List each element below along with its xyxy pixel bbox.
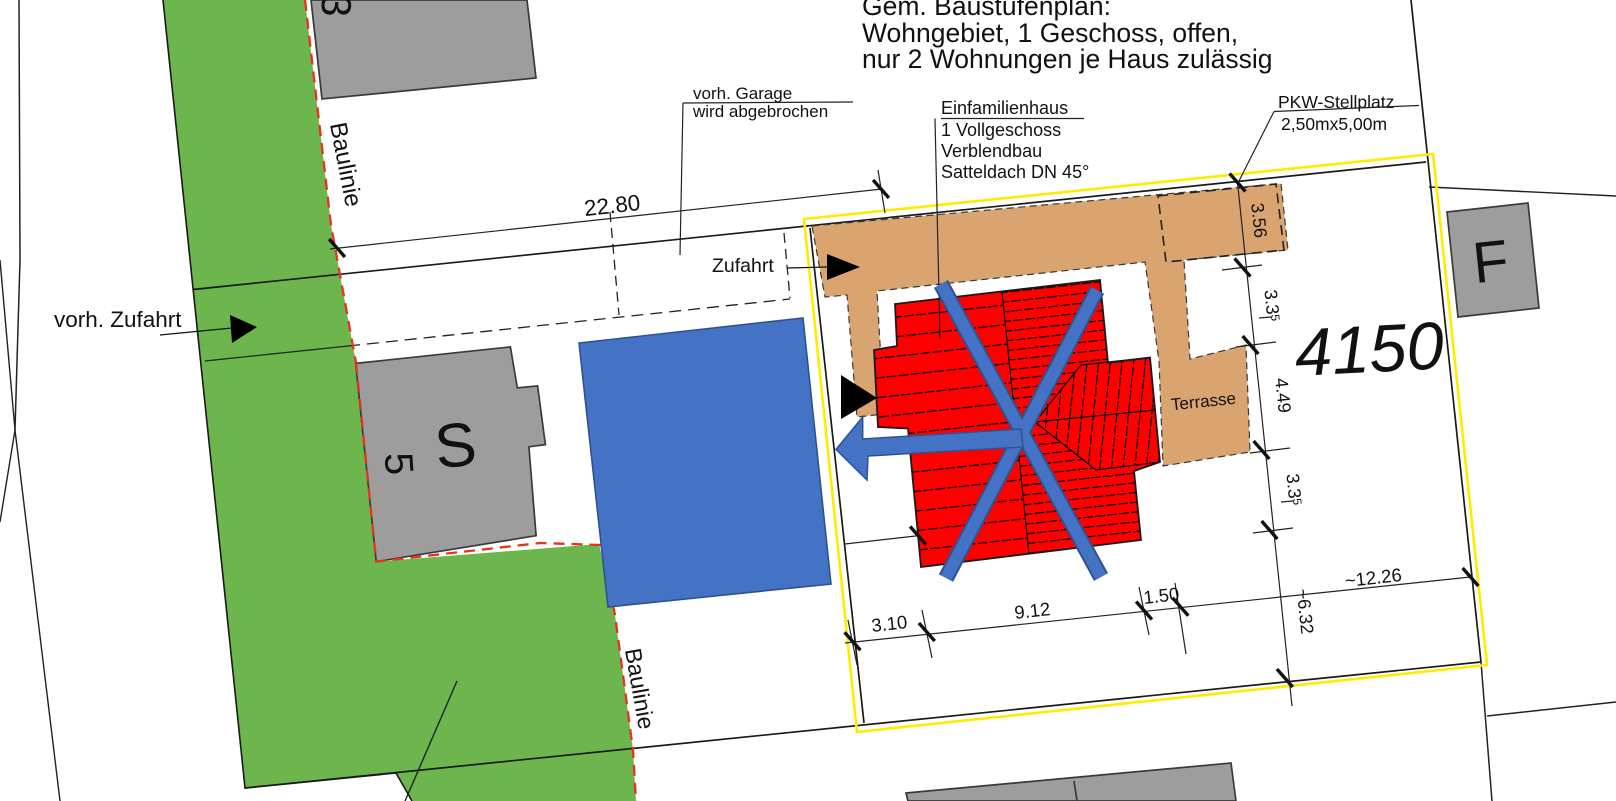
svg-text:3.10: 3.10 bbox=[870, 611, 908, 636]
svg-text:vorh. Garage: vorh. Garage bbox=[693, 84, 792, 103]
svg-text:3: 3 bbox=[312, 0, 360, 18]
svg-text:vorh. Zufahrt: vorh. Zufahrt bbox=[54, 307, 182, 332]
svg-text:3.56: 3.56 bbox=[1247, 202, 1271, 239]
svg-text:nur 2 Wohnungen je Haus zuläss: nur 2 Wohnungen je Haus zulässig bbox=[862, 44, 1273, 74]
svg-text:5: 5 bbox=[376, 451, 421, 476]
svg-text:Verblendbau: Verblendbau bbox=[941, 141, 1042, 161]
svg-text:Zufahrt: Zufahrt bbox=[712, 255, 774, 277]
svg-text:4150: 4150 bbox=[1293, 308, 1446, 391]
svg-text:S: S bbox=[431, 409, 479, 482]
svg-text:1 Vollgeschoss: 1 Vollgeschoss bbox=[941, 120, 1061, 140]
svg-text:Satteldach DN 45°: Satteldach DN 45° bbox=[941, 162, 1089, 182]
svg-text:Einfamilienhaus: Einfamilienhaus bbox=[941, 98, 1068, 118]
svg-text:4.49: 4.49 bbox=[1271, 377, 1295, 414]
svg-text:wird abgebrochen: wird abgebrochen bbox=[692, 102, 828, 121]
svg-text:F: F bbox=[1470, 228, 1512, 296]
svg-text:2,50mx5,00m: 2,50mx5,00m bbox=[1281, 114, 1387, 134]
svg-text:9.12: 9.12 bbox=[1013, 598, 1051, 623]
svg-text:1.50: 1.50 bbox=[1142, 583, 1180, 608]
